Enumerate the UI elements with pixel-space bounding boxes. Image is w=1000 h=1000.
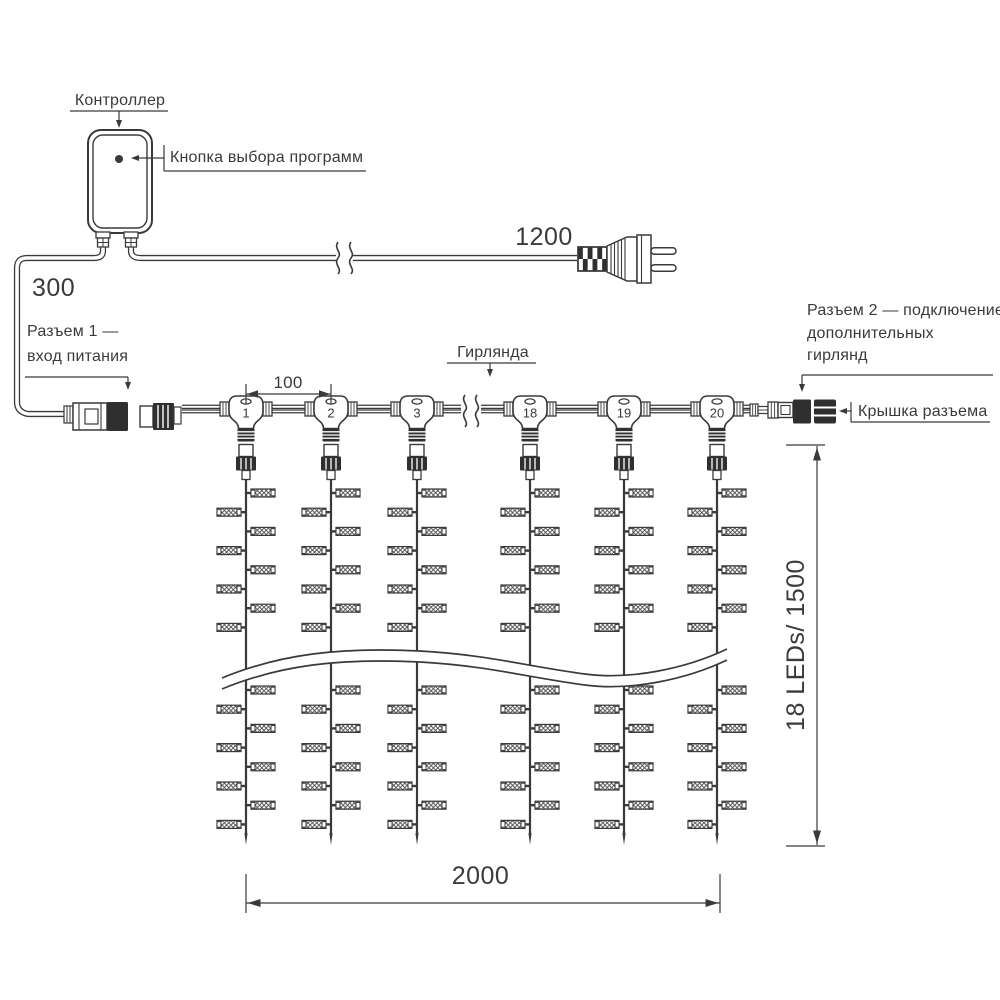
led-capsule [501,547,530,555]
led-capsule [417,763,446,771]
connector1-power-input [64,402,181,431]
t-connector-19: 19 [598,396,650,480]
led-capsule [501,744,530,752]
led-capsule [246,763,275,771]
led-capsule [302,820,331,828]
led-capsule [501,623,530,631]
led-capsule [717,527,746,535]
t-connector-2: 2 [305,396,357,480]
diagram-linework: 123181920 [0,0,1000,1000]
led-capsule [217,705,246,713]
led-capsule [246,527,275,535]
input-lead-length-label: 300 [32,274,75,303]
led-capsule [624,763,653,771]
led-capsule [331,763,360,771]
garland-label: Гирлянда [447,344,539,362]
t-connector-18: 18 [504,396,556,480]
led-capsule [688,705,717,713]
drop-number: 18 [523,406,537,421]
led-capsule [302,508,331,516]
curtain-width-label: 2000 [433,862,528,891]
led-capsule [217,508,246,516]
led-capsule [388,508,417,516]
led-string-19 [595,480,653,845]
led-capsule [717,801,746,809]
connector2-label-line1: Разъем 2 — подключение [807,302,1000,320]
led-capsule [331,686,360,694]
connector2-label-line2: дополнительных [807,325,934,343]
led-capsule [331,724,360,732]
led-capsule [717,724,746,732]
led-capsule [331,604,360,612]
wiring-diagram: 123181920 Контроллер Кнопка выбора прогр… [0,0,1000,1000]
drop-number: 19 [617,406,631,421]
led-capsule [417,566,446,574]
led-capsule [246,801,275,809]
led-capsule [595,623,624,631]
led-capsule [217,820,246,828]
t-connector-3: 3 [391,396,443,480]
led-capsule [624,489,653,497]
led-capsule [501,820,530,828]
connector1-label-line1: Разъем 1 — [27,323,119,341]
led-capsule [302,623,331,631]
led-capsule [417,489,446,497]
led-capsule [624,604,653,612]
led-capsule [331,527,360,535]
led-capsule [246,604,275,612]
led-capsule [388,744,417,752]
led-capsule [388,820,417,828]
connector-cap-label: Крышка разъема [858,403,987,421]
led-capsule [246,489,275,497]
drop-number: 2 [327,406,334,421]
led-capsule [595,705,624,713]
curtain-height-label: 18 LEDs/ 1500 [782,535,810,755]
led-capsule [717,763,746,771]
program-button [115,155,123,163]
led-capsule [217,585,246,593]
curtain-wave-break [222,649,727,689]
led-capsule [530,527,559,535]
led-capsule [331,566,360,574]
led-capsule [417,686,446,694]
led-capsule [688,585,717,593]
connector2-label-line3: гирлянд [807,347,868,365]
led-capsule [331,489,360,497]
led-capsule [417,724,446,732]
led-capsule [595,782,624,790]
drop-spacing-label: 100 [258,373,318,393]
led-capsule [417,604,446,612]
led-capsule [302,547,331,555]
power-cable-break [336,242,353,274]
led-capsule [624,566,653,574]
led-capsule [595,508,624,516]
led-capsule [302,705,331,713]
connector-cap [814,400,836,424]
t-connector-20: 20 [691,396,743,480]
led-capsule [246,686,275,694]
led-capsule [530,686,559,694]
led-capsule [501,508,530,516]
led-capsule [530,489,559,497]
led-capsule [217,547,246,555]
led-capsule [388,705,417,713]
led-capsule [717,686,746,694]
led-capsule [246,724,275,732]
led-capsule [501,782,530,790]
led-capsule [624,801,653,809]
controller-label: Контроллер [60,92,180,110]
led-capsule [530,763,559,771]
led-capsule [717,604,746,612]
led-capsule [595,744,624,752]
led-capsule [688,508,717,516]
drop-number: 20 [710,406,724,421]
led-capsule [217,782,246,790]
power-cable-length-label: 1200 [504,223,584,252]
led-capsule [331,801,360,809]
led-capsule [688,820,717,828]
power-plug [578,235,676,283]
led-capsule [217,744,246,752]
drop-number: 3 [413,406,420,421]
controller [88,130,152,247]
led-capsule [624,686,653,694]
led-capsule [388,782,417,790]
led-capsule [388,623,417,631]
led-capsule [302,585,331,593]
led-capsule [688,782,717,790]
led-capsule [501,705,530,713]
led-capsule [530,566,559,574]
program-button-label: Кнопка выбора программ [170,149,363,167]
led-capsule [688,547,717,555]
led-capsule [417,527,446,535]
led-capsule [388,585,417,593]
led-capsule [417,801,446,809]
led-capsule [217,623,246,631]
led-capsule [595,547,624,555]
led-capsule [530,604,559,612]
led-capsule [501,585,530,593]
led-capsule [302,782,331,790]
led-capsule [530,801,559,809]
main-cable-break [461,395,481,427]
t-connector-1: 1 [220,396,272,480]
connector2-output [750,400,811,424]
led-capsule [530,724,559,732]
led-capsule [624,527,653,535]
led-capsule [688,623,717,631]
led-capsule [717,566,746,574]
led-capsule [595,585,624,593]
led-capsule [302,744,331,752]
connector1-label-line2: вход питания [27,348,128,366]
led-capsule [717,489,746,497]
led-capsule [595,820,624,828]
led-capsule [246,566,275,574]
drop-number: 1 [242,406,249,421]
led-capsule [388,547,417,555]
led-capsule [624,724,653,732]
led-capsule [688,744,717,752]
